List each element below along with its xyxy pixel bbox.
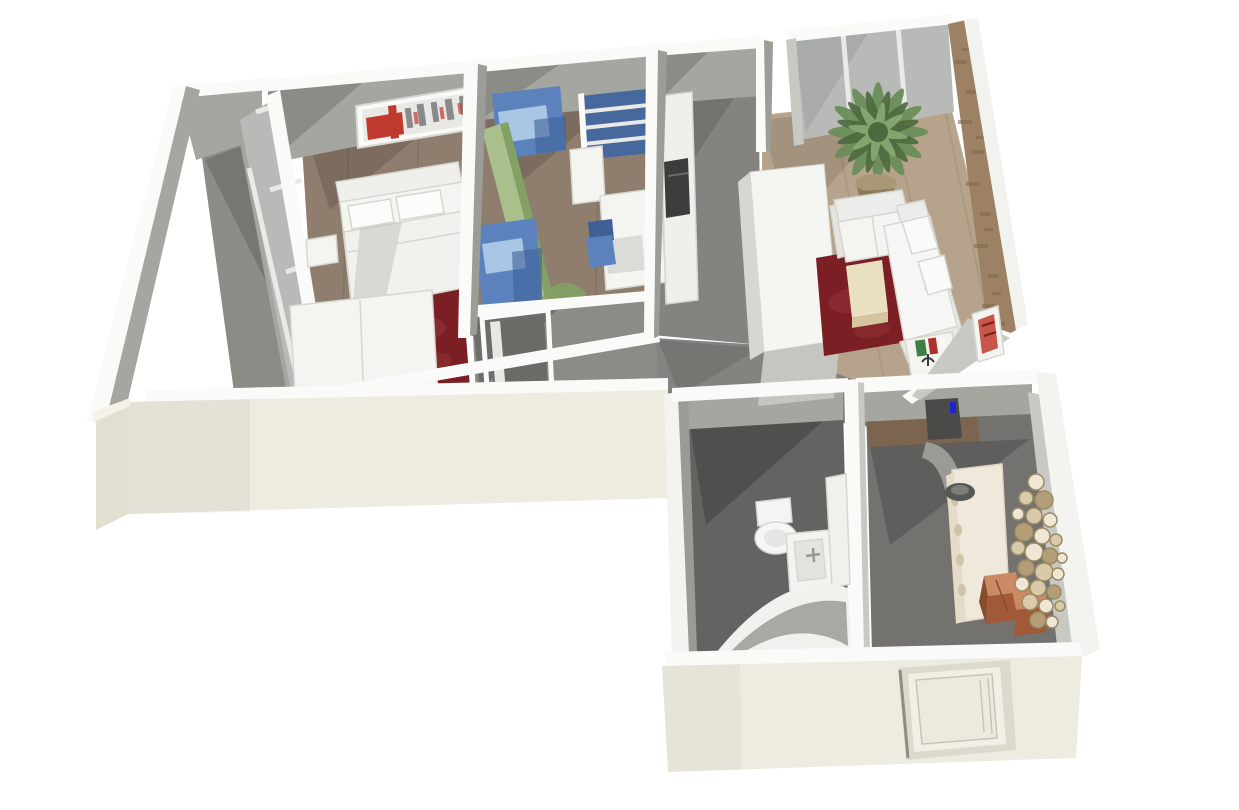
console-table — [946, 464, 1010, 624]
window-wall — [236, 90, 330, 410]
sink-vanity — [786, 530, 834, 592]
entry-floor — [866, 396, 1062, 654]
doorway-opening — [925, 398, 962, 440]
wall-bookshelf — [578, 86, 662, 161]
coffee-table — [846, 260, 888, 328]
bathroom — [712, 474, 852, 658]
textured-accent-wall — [948, 18, 1028, 345]
balcony-floor — [202, 140, 318, 436]
floorplan-svg — [0, 0, 1239, 810]
plant-pot — [855, 174, 897, 206]
bedroom-floor — [300, 92, 472, 398]
desk — [600, 188, 666, 290]
corner-bathtub — [712, 584, 852, 658]
decor-bowl — [945, 483, 975, 501]
skyline-silhouette — [405, 96, 468, 129]
decor-figure — [922, 354, 934, 366]
kids-room-floor — [472, 72, 652, 336]
south-exterior-wall — [92, 378, 668, 530]
living-rug — [816, 244, 906, 356]
dark-appliance — [664, 158, 690, 218]
upper-wing-wall-side-faces — [104, 40, 773, 434]
floor-shadows — [205, 66, 1030, 545]
kitchen-corridor — [660, 92, 840, 406]
living-room-floor — [762, 95, 1008, 398]
floorplan-3d-render — [0, 0, 1239, 810]
bottom-wing — [662, 369, 1100, 772]
dresser — [290, 290, 438, 438]
cork-texture — [955, 48, 1005, 326]
bunk-bed-upper — [492, 86, 566, 160]
green-slide — [482, 122, 586, 312]
media-shelf — [905, 332, 958, 380]
bedroom-rug — [372, 284, 470, 402]
plank-lines — [790, 110, 990, 390]
front-door — [898, 660, 1016, 760]
entry-hall — [922, 398, 1067, 636]
north-wall-faces — [180, 44, 1032, 430]
duvet — [344, 210, 472, 310]
double-bed — [336, 162, 472, 310]
nightstand — [306, 235, 338, 267]
red-artwork — [972, 306, 1004, 362]
window-mullions — [249, 104, 324, 400]
sectional-sofa — [830, 190, 964, 362]
mirror-cabinet — [826, 474, 850, 588]
copper-boxes — [979, 572, 1048, 636]
panorama-window — [786, 14, 954, 146]
book-red — [928, 338, 938, 355]
tall-island-unit — [738, 164, 840, 406]
open-door — [482, 310, 552, 400]
entry-wood-strip — [866, 398, 980, 447]
upper-wing-wall-caps — [88, 36, 768, 442]
pillow-left — [348, 199, 394, 229]
kitchen-floor — [652, 64, 762, 345]
pebble-texture — [951, 494, 966, 596]
desk-chair — [586, 219, 616, 268]
book-white — [938, 336, 948, 353]
book-green — [915, 339, 927, 356]
palm-plant — [828, 82, 928, 206]
hallway-floor — [655, 338, 905, 432]
bottom-exterior-wall — [662, 642, 1082, 772]
living-southeast-wall — [902, 306, 1014, 404]
curved-partition — [922, 442, 964, 506]
toilet — [755, 498, 797, 554]
floors — [202, 64, 1062, 654]
pillow-right — [396, 190, 444, 220]
city-skyline-artwork — [356, 86, 480, 148]
closet-hall — [466, 290, 660, 400]
plank-lines-bedroom — [340, 78, 600, 390]
living-room — [786, 14, 1028, 404]
master-bedroom — [236, 86, 480, 438]
bathroom-floor — [688, 406, 849, 652]
kids-room — [476, 86, 666, 312]
storage-cabinet — [570, 146, 605, 204]
bunk-bed-lower — [476, 218, 542, 308]
faucet — [806, 548, 820, 562]
circle-wall-art — [1011, 474, 1067, 628]
counter-run — [660, 92, 698, 304]
door-detail-blue — [950, 402, 956, 413]
